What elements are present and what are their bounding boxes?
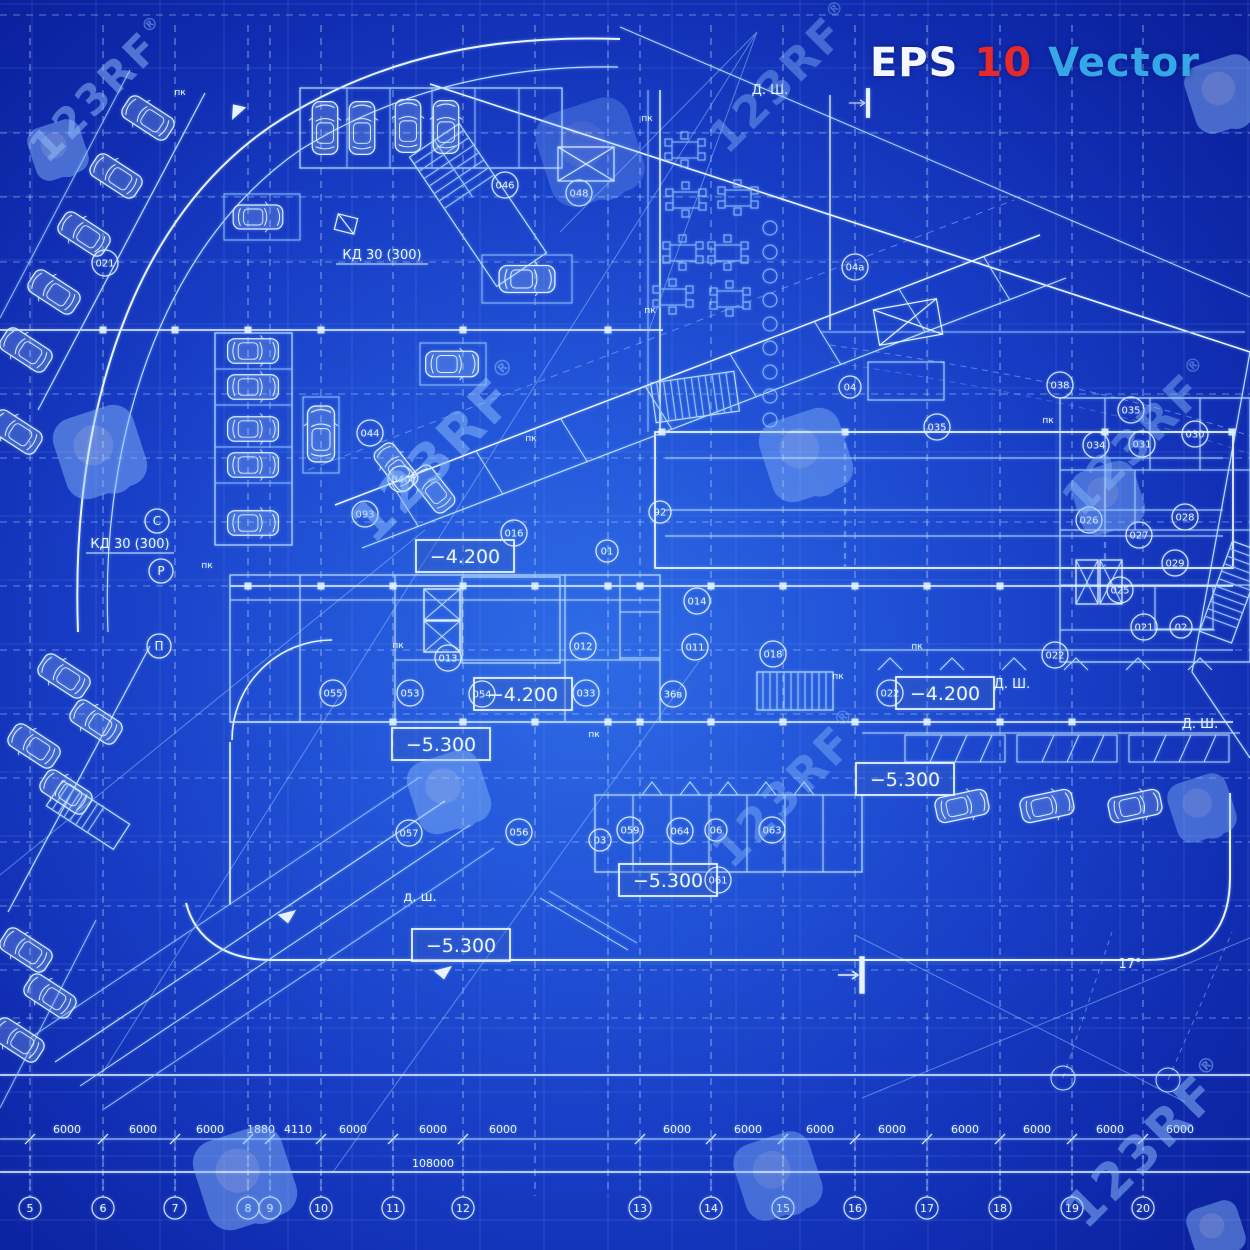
dimension-value: 6000 — [196, 1123, 224, 1136]
room-number: 92 — [654, 508, 667, 519]
car-icon — [233, 202, 283, 232]
axis-letter: Р — [157, 564, 164, 578]
blueprint-drawing: −4.200−4.200−4.200−5.300−5.300−5.300−5.3… — [0, 0, 1250, 1250]
room-number: 046 — [495, 181, 514, 192]
door-mark — [940, 658, 964, 670]
axis-node — [532, 719, 539, 726]
grid-bubble-number: 11 — [386, 1202, 400, 1215]
note-text: КД 30 (300) — [90, 537, 169, 552]
wing-partition — [561, 419, 588, 462]
room-number-label: 01 — [596, 540, 618, 562]
room-number: 022 — [880, 689, 899, 700]
note-label: КД 30 (300) — [86, 537, 174, 553]
elevation-label: −5.300 — [412, 929, 510, 961]
note-text: Д. Ш. — [1182, 717, 1218, 732]
car-icon — [430, 101, 462, 154]
axis-node — [659, 429, 666, 436]
axis-node — [924, 583, 931, 590]
total-dimension-value: 108000 — [412, 1157, 454, 1170]
watermark-camera-logo-icon — [47, 399, 152, 504]
table-icon — [665, 132, 705, 167]
room-number: 029 — [1165, 559, 1184, 570]
room-number-label: 056 — [506, 819, 532, 845]
note-text: Д. Ш. — [994, 677, 1030, 692]
room-number: 018 — [763, 650, 782, 661]
room-number: 027 — [1129, 531, 1148, 542]
room-number: 056 — [509, 828, 528, 839]
watermark-camera-logo-icon — [529, 91, 651, 213]
room-number: 044 — [360, 429, 379, 440]
car-icon — [228, 335, 279, 366]
axis-node — [390, 719, 397, 726]
grid-bubble-number: 10 — [314, 1202, 328, 1215]
chair-icon — [679, 263, 686, 270]
axis-node — [100, 327, 107, 334]
table-icon — [710, 281, 750, 316]
grid-bubble-number: 5 — [27, 1202, 34, 1215]
car-icon — [392, 100, 424, 153]
chair-icon — [696, 242, 703, 249]
pk-label: пк — [641, 114, 653, 124]
elevation-value: −5.300 — [633, 870, 703, 892]
room-number: 021 — [95, 259, 114, 270]
room-number-label: 044 — [357, 420, 383, 446]
elevation-value: −4.200 — [488, 684, 558, 706]
chair-icon — [653, 286, 660, 293]
axis-node — [605, 583, 612, 590]
grid-bubble-number: 16 — [848, 1202, 862, 1215]
watermark-text: 123RF® — [699, 0, 870, 163]
watermark-text: 123RF® — [338, 347, 546, 555]
room-number: 012 — [573, 642, 592, 653]
room-number-label: 046 — [492, 172, 518, 198]
room-number: 054 — [472, 690, 491, 701]
room-number-label: 059 — [617, 817, 643, 843]
watermarks: 123RF®123RF®123RF®123RF®123RF®123RF® — [20, 0, 1250, 1250]
room-number-label: 018 — [760, 641, 786, 667]
pk-label: пк — [911, 642, 923, 652]
room-number: 016 — [504, 529, 523, 540]
axis-node — [245, 583, 252, 590]
room-number: 053 — [400, 689, 419, 700]
chair-icon — [726, 281, 733, 288]
room-number: 028 — [1175, 513, 1194, 524]
note-label: Д. Ш. — [994, 677, 1030, 692]
note-text: д. ш. — [403, 890, 436, 905]
chair-icon — [751, 201, 758, 208]
room-number-label: 021 — [1131, 614, 1157, 640]
elevation-value: −4.200 — [910, 683, 980, 705]
room-number: 055 — [323, 689, 342, 700]
chair-icon — [734, 208, 741, 215]
axis-node — [460, 719, 467, 726]
note-label: Д. Ш. — [1182, 717, 1218, 732]
room-number-label: 035 — [924, 414, 950, 440]
room-number-label: 029 — [1162, 550, 1188, 576]
room-number-label: 064 — [667, 818, 693, 844]
chair-icon — [698, 153, 705, 160]
axis-node — [1229, 429, 1236, 436]
dimension-value: 4110 — [284, 1123, 312, 1136]
dimension-value: 6000 — [419, 1123, 447, 1136]
axis-letter-bubble: Р — [149, 559, 173, 583]
room-number: 038 — [1050, 381, 1069, 392]
eps-label: EPS — [870, 40, 958, 86]
door-mark — [642, 782, 662, 795]
room-number: 030 — [1185, 430, 1204, 441]
dimension-value: 6000 — [53, 1123, 81, 1136]
axis-node — [924, 719, 931, 726]
dimension-value: 6000 — [1023, 1123, 1051, 1136]
note-text: КД 30 (300) — [342, 248, 421, 263]
dimension-value: 6000 — [951, 1123, 979, 1136]
room-number: 04а — [846, 263, 865, 274]
vector-label: Vector — [1048, 40, 1200, 86]
seat-circle-icon — [763, 341, 777, 355]
axis-node — [852, 583, 859, 590]
grid-bubble-number: 18 — [993, 1202, 1007, 1215]
car-icon — [53, 206, 115, 262]
chair-icon — [741, 242, 748, 249]
room-number: 061 — [708, 876, 727, 887]
axis-node — [172, 327, 179, 334]
room-number-label: 021 — [92, 250, 118, 276]
room-number: 04 — [844, 383, 857, 394]
seat-circle-icon — [763, 365, 777, 379]
dimension-value: 6000 — [129, 1123, 157, 1136]
room-number: 03 — [594, 836, 607, 847]
dimension-value: 6000 — [806, 1123, 834, 1136]
axis-letter: П — [154, 639, 163, 653]
watermark-text: 123RF® — [20, 8, 184, 172]
room-number: 01 — [601, 547, 614, 558]
axis-node — [708, 719, 715, 726]
room-number: 014 — [687, 597, 706, 608]
door-mark — [1002, 658, 1026, 670]
chair-icon — [743, 288, 750, 295]
watermark-camera-logo-icon — [1183, 1197, 1250, 1250]
elevation-label: −5.300 — [392, 728, 490, 760]
wing-partition — [984, 257, 1010, 300]
pk-label: пк — [174, 88, 186, 98]
pk-label: пк — [1042, 416, 1054, 426]
room-number: 057 — [399, 829, 418, 840]
eps-vector-banner: EPS 10 Vector — [870, 40, 1200, 86]
room-number-label: 013 — [435, 645, 461, 671]
axis-node — [780, 583, 787, 590]
chair-icon — [663, 242, 670, 249]
car-icon — [228, 449, 279, 480]
chair-icon — [682, 210, 689, 217]
table-icon — [653, 279, 693, 314]
axis-node — [780, 719, 787, 726]
room-number-label: 012 — [570, 633, 596, 659]
chair-icon — [743, 302, 750, 309]
room-number-label: 92 — [649, 501, 671, 523]
car-icon — [346, 102, 378, 155]
axis-node — [997, 719, 1004, 726]
room-number: 02 — [1175, 623, 1188, 634]
seat-circle-icon — [763, 245, 777, 259]
car-icon — [228, 413, 279, 444]
door-mark — [1126, 658, 1150, 670]
room-number: 059 — [620, 826, 639, 837]
pk-label: пк — [588, 730, 600, 740]
grid-bubble-number: 20 — [1136, 1202, 1150, 1215]
grid-bubble-number: 6 — [100, 1202, 107, 1215]
car-icon — [1018, 785, 1076, 828]
room-number: 022 — [1045, 651, 1064, 662]
room-number: 035 — [927, 423, 946, 434]
seat-circle-icon — [763, 269, 777, 283]
room-number: 064 — [670, 827, 689, 838]
axis-letter: С — [153, 514, 161, 528]
note-label: КД 30 (300) — [336, 248, 428, 264]
door-mark — [1188, 658, 1212, 670]
elevation-value: −4.200 — [430, 546, 500, 568]
axis-node — [532, 583, 539, 590]
car-icon — [309, 102, 341, 155]
grid-bubble-number: 7 — [172, 1202, 179, 1215]
car-icon — [228, 371, 279, 402]
axis-node — [605, 719, 612, 726]
elevation-value: −5.300 — [870, 769, 940, 791]
door-mark — [680, 782, 700, 795]
wing-partition — [814, 321, 840, 364]
room-number: 36в — [664, 690, 683, 701]
axis-node — [1069, 719, 1076, 726]
axis-letter-bubble: П — [147, 634, 171, 658]
elevation-label: −5.300 — [619, 864, 717, 896]
door-mark — [718, 782, 738, 795]
chair-icon — [724, 263, 731, 270]
chair-icon — [686, 286, 693, 293]
car-icon — [1106, 785, 1164, 828]
note-label: д. ш. — [403, 890, 436, 905]
chair-icon — [686, 300, 693, 307]
axis-node — [245, 327, 252, 334]
chair-icon — [724, 235, 731, 242]
axis-node — [460, 327, 467, 334]
elevation-value: −5.300 — [426, 935, 496, 957]
room-number-label: 011 — [682, 634, 708, 660]
chair-icon — [718, 201, 725, 208]
room-number: 033 — [576, 689, 595, 700]
room-number: 011 — [685, 643, 704, 654]
axis-node — [605, 327, 612, 334]
construction-lines — [0, 32, 1250, 1172]
seat-circle-icon — [763, 293, 777, 307]
axis-letter-bubble: С — [145, 509, 169, 533]
elevation-label: −5.300 — [856, 763, 954, 795]
room-number: 021 — [1134, 623, 1153, 634]
dimension-value: 6000 — [339, 1123, 367, 1136]
door-mark — [878, 658, 902, 670]
grid-bubble-number: 17 — [920, 1202, 934, 1215]
pk-label: пк — [392, 641, 404, 651]
grid-bubble-number: 12 — [456, 1202, 470, 1215]
seat-circle-icon — [763, 221, 777, 235]
room-number-label: 061 — [705, 867, 731, 893]
chair-icon — [665, 153, 672, 160]
chair-icon — [665, 139, 672, 146]
axis-node — [637, 719, 644, 726]
car-icon — [499, 262, 555, 296]
chair-icon — [718, 187, 725, 194]
pk-label: пк — [832, 672, 844, 682]
watermark-camera-logo-icon — [187, 1120, 303, 1236]
elevation-label: −4.200 — [896, 677, 994, 709]
car-icon — [19, 968, 81, 1024]
table-icon — [663, 235, 703, 270]
watermark-camera-logo-icon — [728, 1126, 828, 1226]
watermark-text: 123RF® — [701, 699, 880, 878]
axis-node — [460, 583, 467, 590]
room-number-label: 053 — [397, 680, 423, 706]
axis-node — [318, 327, 325, 334]
room-number-label: 02 — [1170, 616, 1192, 638]
room-number-label: 055 — [320, 680, 346, 706]
note-text: 17° — [1118, 957, 1141, 972]
dimension-value: 6000 — [734, 1123, 762, 1136]
note-label: 17° — [1118, 957, 1141, 972]
table-icon — [708, 235, 748, 270]
room-number: 013 — [438, 654, 457, 665]
dimension-value: 6000 — [663, 1123, 691, 1136]
room-number-label: 36в — [660, 681, 686, 707]
room-number: 025 — [1110, 586, 1129, 597]
room-number-label: 04 — [839, 376, 861, 398]
elevation-label: −4.200 — [416, 540, 514, 572]
chair-icon — [682, 182, 689, 189]
car-icon — [33, 648, 95, 704]
dimension-value: 6000 — [489, 1123, 517, 1136]
chair-icon — [698, 139, 705, 146]
watermark-camera-logo-icon — [753, 402, 858, 507]
pk-label: пк — [201, 561, 213, 571]
car-icon — [304, 406, 338, 462]
grid-bubble-number: 14 — [704, 1202, 718, 1215]
pk-label: пк — [644, 306, 656, 316]
room-number-label: 033 — [573, 680, 599, 706]
room-number-label: 028 — [1172, 504, 1198, 530]
blueprint-canvas: EPS 10 Vector — [0, 0, 1250, 1250]
pk-label: пк — [525, 434, 537, 444]
car-icon — [228, 507, 279, 538]
room-number-label: 022 — [1042, 642, 1068, 668]
chair-icon — [699, 203, 706, 210]
axis-node — [390, 583, 397, 590]
axis-node — [997, 583, 1004, 590]
eps-version-label: 10 — [974, 40, 1032, 86]
axis-node — [708, 583, 715, 590]
dimension-value: 6000 — [878, 1123, 906, 1136]
axis-node — [637, 583, 644, 590]
car-icon — [3, 718, 65, 774]
room-number-label: 022 — [877, 680, 903, 706]
axis-node — [318, 583, 325, 590]
car-icon — [426, 348, 479, 380]
grid-bubble-number: 13 — [633, 1202, 647, 1215]
car-icon — [0, 1012, 49, 1068]
room-number-label: 014 — [684, 588, 710, 614]
